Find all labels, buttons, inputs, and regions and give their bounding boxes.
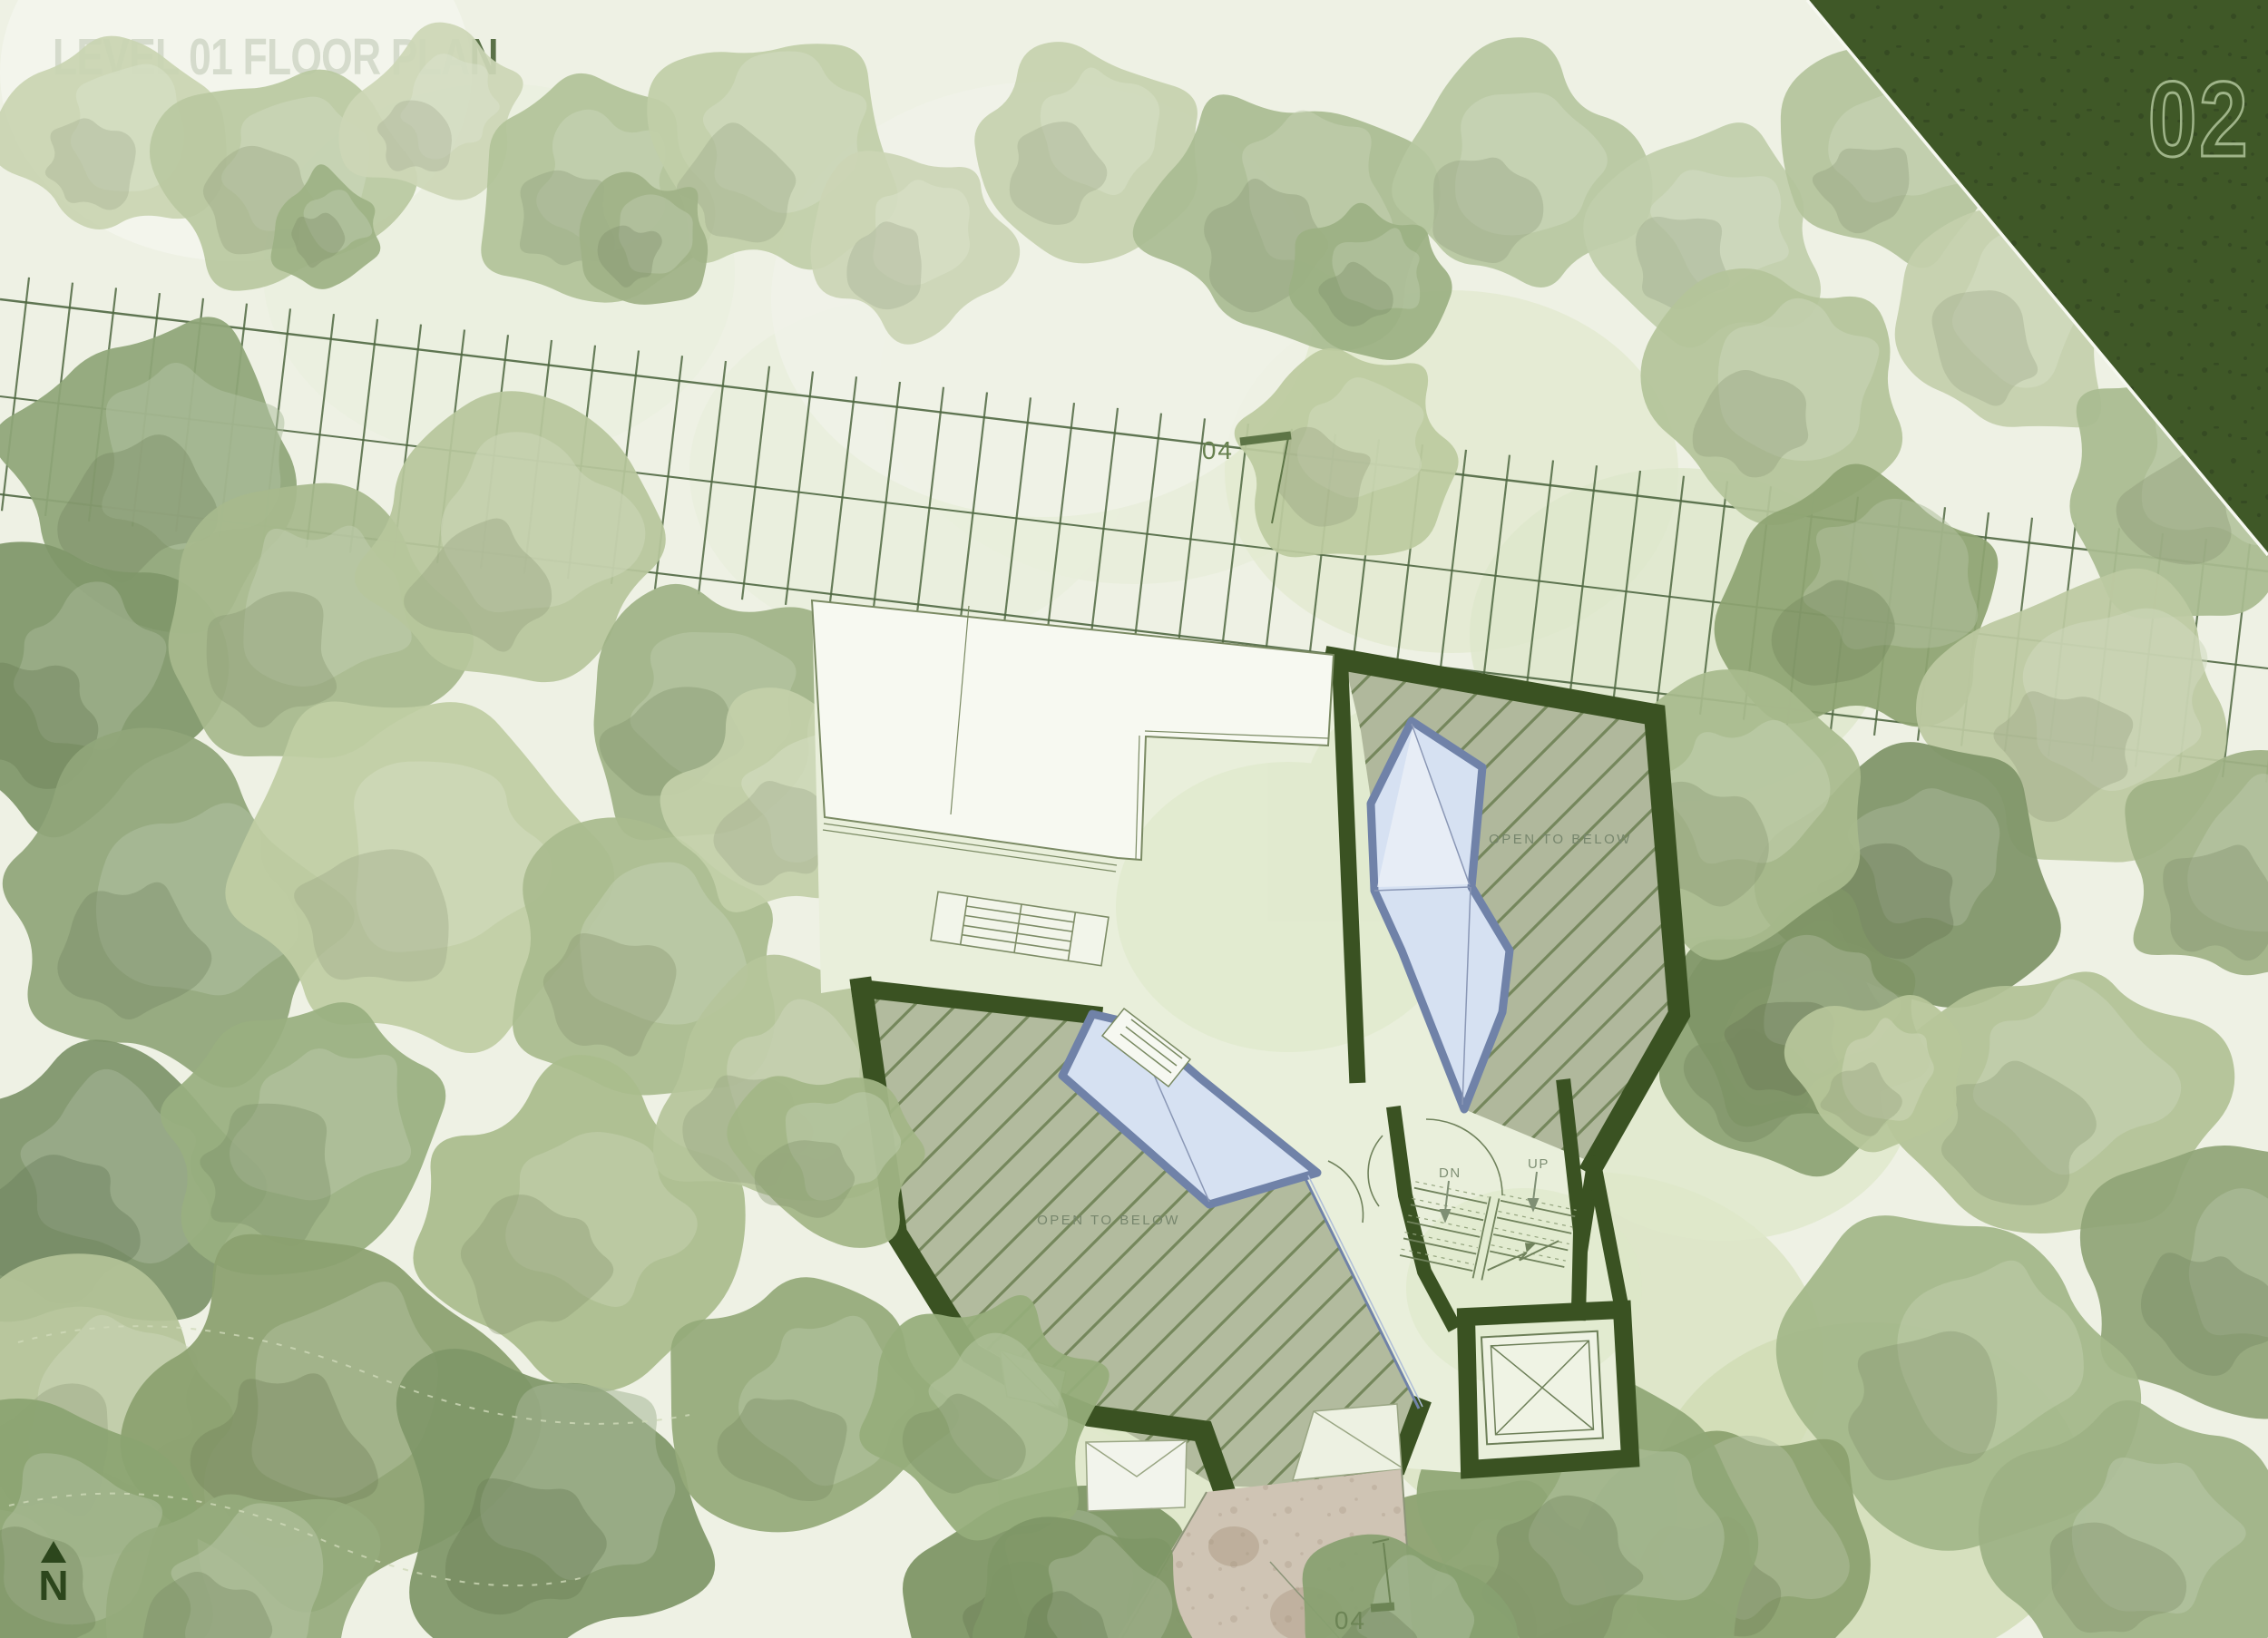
stair-dn-label: DN: [1439, 1165, 1461, 1181]
open-to-below-lower-label: OPEN TO BELOW: [1037, 1213, 1180, 1228]
open-to-below-upper-label: OPEN TO BELOW: [1489, 832, 1632, 847]
section-flag-icon: [1371, 1606, 1394, 1608]
north-label: N: [38, 1562, 68, 1609]
site-plan-drawing: OPEN TO BELOW OPEN TO BELOW DN UP 04 04 …: [0, 0, 2268, 1638]
stair-up-label: UP: [1528, 1156, 1549, 1172]
section-marker-top-label: 04: [1202, 436, 1234, 464]
sheet-number-badge: 02: [2148, 59, 2251, 179]
section-marker-bottom-label: 04: [1334, 1606, 1366, 1634]
sheet-canvas: LEVEL 01 FLOOR PLAN: [0, 0, 2268, 1638]
